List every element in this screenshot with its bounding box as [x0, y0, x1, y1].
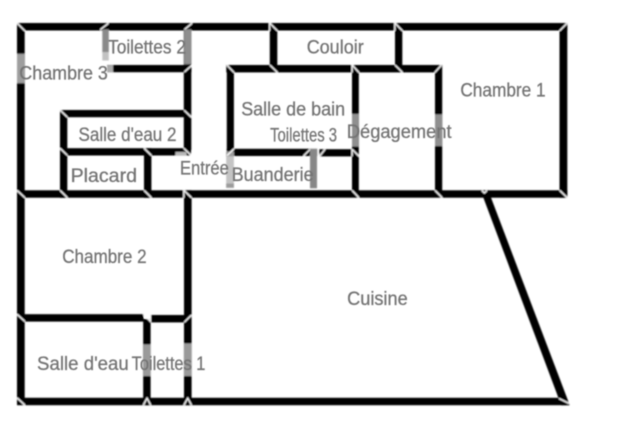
svg-text:Chambre 3: Chambre 3 [19, 62, 108, 84]
svg-text:Chambre 2: Chambre 2 [62, 246, 146, 268]
svg-text:Toilettes 1: Toilettes 1 [132, 353, 206, 375]
svg-text:Placard: Placard [71, 165, 137, 187]
svg-text:Salle de bain: Salle de bain [241, 99, 345, 121]
svg-text:Dégagement: Dégagement [347, 121, 452, 143]
svg-text:Couloir: Couloir [307, 37, 364, 59]
svg-text:Buanderie: Buanderie [232, 164, 314, 186]
svg-text:Cuisine: Cuisine [347, 288, 408, 310]
svg-text:Toilettes 2: Toilettes 2 [108, 37, 186, 59]
svg-text:Chambre 1: Chambre 1 [460, 79, 545, 101]
svg-text:Salle d'eau: Salle d'eau [37, 353, 129, 375]
svg-text:Toilettes 3: Toilettes 3 [270, 124, 337, 146]
svg-text:Salle d'eau 2: Salle d'eau 2 [79, 124, 177, 146]
svg-text:Entrée: Entrée [180, 158, 229, 180]
